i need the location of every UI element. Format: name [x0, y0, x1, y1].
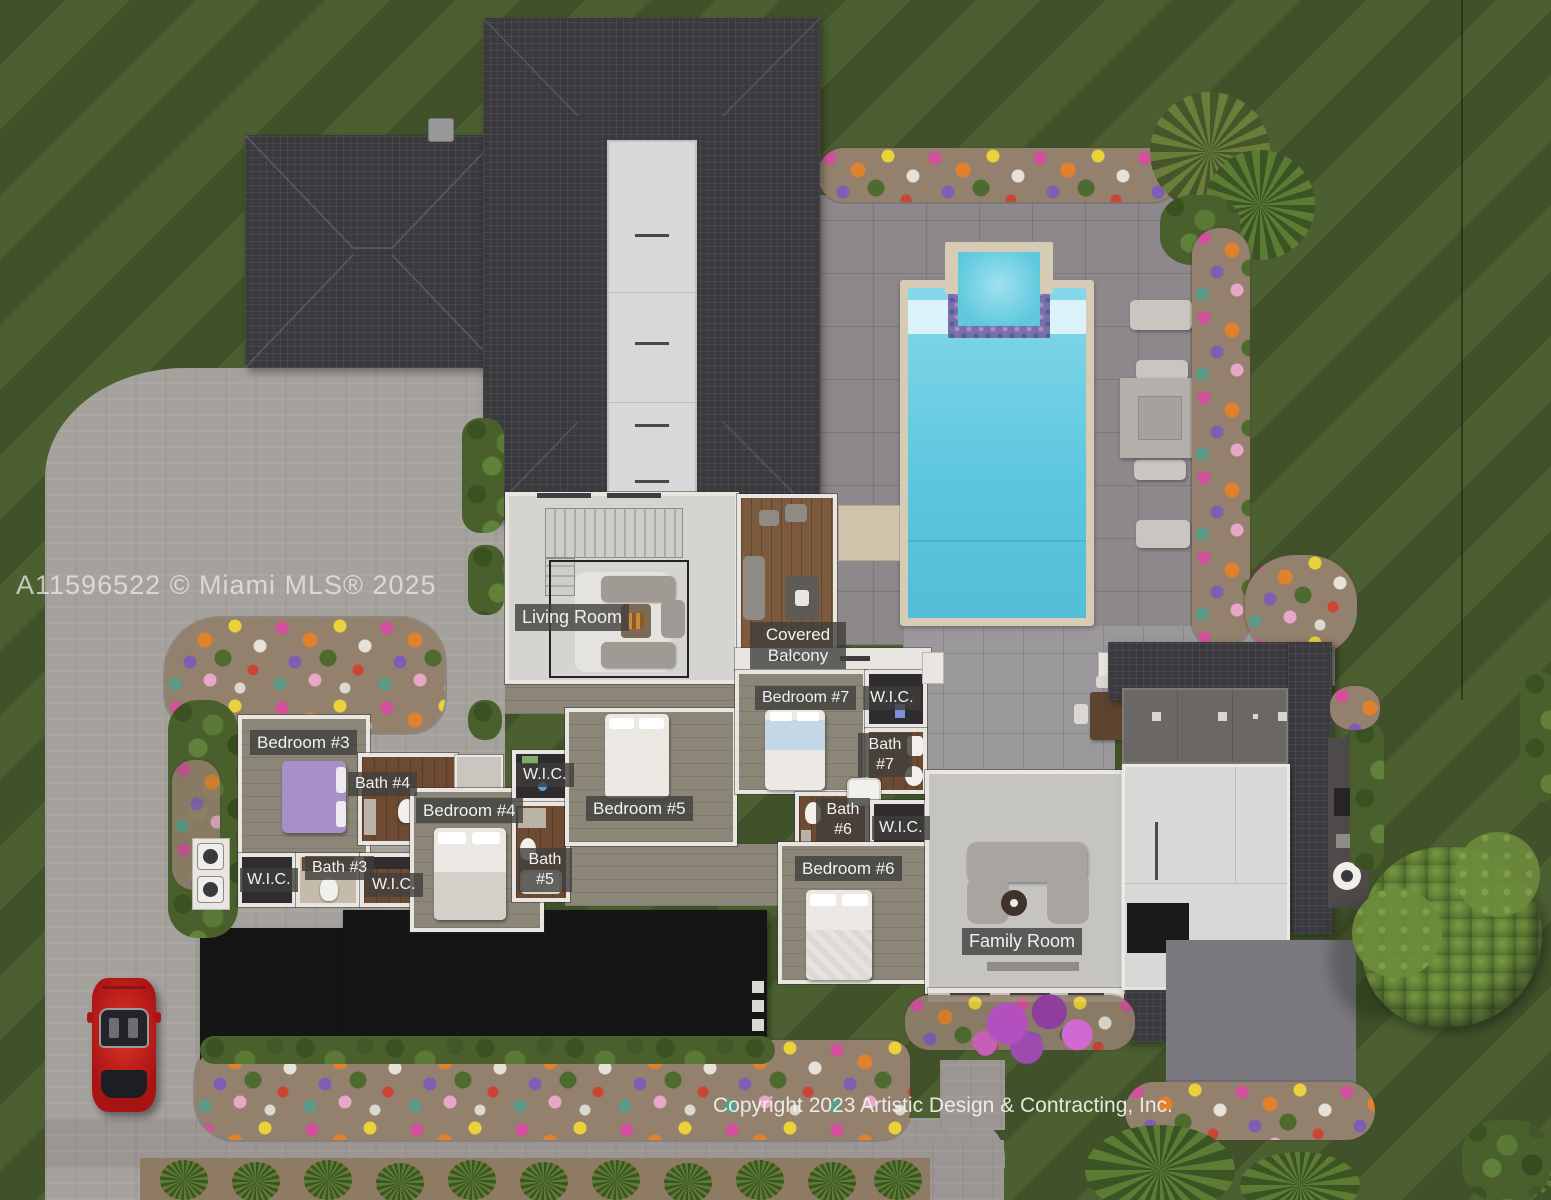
- label-bedroom-4: Bedroom #4: [416, 798, 523, 823]
- lounge-chair: [1134, 460, 1186, 480]
- rear-window: [101, 1070, 147, 1098]
- label-living-room: Living Room: [515, 604, 629, 631]
- hedge-right: [1350, 722, 1384, 870]
- window: [537, 493, 591, 498]
- agave-plant: [808, 1162, 856, 1200]
- copyright-text: Copyright 2023 Artistic Design & Contrac…: [713, 1094, 1173, 1118]
- chimney: [428, 118, 454, 142]
- fire-table-top: [795, 590, 809, 606]
- roof-seam: [1125, 883, 1287, 884]
- pillow: [639, 718, 664, 729]
- skylight-tick: [635, 234, 669, 237]
- lounge-chair: [1136, 520, 1190, 548]
- sofa: [601, 642, 675, 668]
- ac-fan: [203, 882, 218, 897]
- window: [607, 493, 661, 498]
- label-bath-7: Bath #7: [858, 733, 912, 777]
- pillow: [438, 832, 466, 844]
- roof-vent: [1278, 712, 1287, 721]
- skylight: [607, 140, 697, 505]
- hood-line: [102, 986, 146, 989]
- agave-plant: [160, 1160, 208, 1200]
- roof-vent: [1253, 714, 1258, 719]
- side-mirror: [155, 1012, 161, 1023]
- terrace-chair: [1074, 704, 1088, 724]
- staircase: [545, 508, 683, 558]
- label-bedroom-6: Bedroom #6: [795, 856, 902, 881]
- label-bath-6: Bath #6: [816, 798, 870, 842]
- outdoor-sofa: [743, 556, 765, 620]
- flower-bed-right-strip: [1192, 228, 1250, 648]
- room-bedroom-5: [565, 708, 737, 846]
- red-car: [92, 978, 156, 1112]
- skylight-tick: [635, 342, 669, 345]
- bed: [434, 828, 506, 920]
- fire-table-outdoor: [785, 576, 819, 620]
- ac-unit: [197, 876, 224, 903]
- windshield: [99, 1008, 149, 1048]
- label-wic-right: W.I.C.: [365, 873, 423, 897]
- car-seat: [109, 1018, 119, 1038]
- agave-plant: [592, 1160, 640, 1200]
- agave-plant: [736, 1160, 784, 1200]
- label-bedroom-5: Bedroom #5: [586, 796, 693, 821]
- main-roof: [483, 18, 820, 520]
- fire-logs: [628, 613, 644, 629]
- pillow: [810, 894, 836, 906]
- sofa: [601, 576, 675, 602]
- label-family-room: Family Room: [962, 928, 1082, 955]
- pillow: [336, 767, 346, 793]
- bed: [765, 710, 825, 790]
- roof-vent: [1218, 712, 1227, 721]
- agave-plant: [448, 1160, 496, 1200]
- toilet: [320, 877, 338, 901]
- site-plan-rendering: Living Room Covered Balcony Bedroom #7 W…: [0, 0, 1551, 1200]
- left-roof: [245, 135, 500, 368]
- pool-seam: [908, 540, 1086, 542]
- roof-vent: [752, 1000, 764, 1012]
- agave-plant: [304, 1160, 352, 1200]
- roof-vent: [752, 1019, 764, 1031]
- property-line: [1461, 0, 1463, 700]
- label-wic-left: W.I.C.: [240, 868, 298, 892]
- label-wic-7: W.I.C.: [863, 686, 921, 710]
- dining-table: [1138, 396, 1182, 440]
- car-seat: [128, 1018, 138, 1038]
- pillow: [842, 894, 868, 906]
- garage-roof-inset: [1122, 688, 1288, 764]
- bed: [806, 890, 872, 980]
- ac-fan: [203, 849, 218, 864]
- label-wic-6: W.I.C.: [872, 816, 930, 840]
- agave-plant: [520, 1162, 568, 1200]
- big-tree-lobe: [1455, 832, 1540, 917]
- skylight-seam: [609, 292, 695, 293]
- agave-plant: [874, 1160, 922, 1200]
- console-table: [987, 962, 1079, 971]
- terrace-pillar: [922, 652, 944, 684]
- shrub-strip: [462, 418, 504, 533]
- roof-seam: [1235, 767, 1236, 883]
- duvet: [806, 930, 872, 980]
- spa-water: [958, 252, 1040, 326]
- hedge-bottom: [200, 1036, 775, 1064]
- vanity: [364, 799, 376, 835]
- pillow: [797, 712, 819, 721]
- kitchen-sink: [1336, 834, 1350, 848]
- side-mirror: [87, 1012, 93, 1023]
- sectional-sofa: [1047, 874, 1089, 924]
- palm-tree: [1240, 1152, 1360, 1200]
- side-table: [1001, 890, 1027, 916]
- room-living: [505, 492, 739, 684]
- blanket: [434, 872, 506, 920]
- roof-seam: [1155, 822, 1158, 880]
- label-wic-central: W.I.C.: [516, 763, 574, 787]
- label-bath-4: Bath #4: [348, 772, 417, 796]
- terrace-left: [903, 626, 1115, 774]
- pillow: [609, 718, 634, 729]
- hallway-lower: [565, 844, 780, 906]
- label-bedroom-3: Bedroom #3: [250, 730, 357, 755]
- pool-equipment-pad: [838, 505, 900, 561]
- room-family: [925, 770, 1125, 994]
- black-flat-roof-wide: [343, 910, 767, 1045]
- armchair: [661, 600, 685, 638]
- bougainvillea: [968, 988, 1108, 1073]
- lounge-chair: [1136, 360, 1188, 380]
- pillow: [336, 801, 346, 827]
- outdoor-chair: [759, 510, 779, 526]
- right-roof-column: [1288, 642, 1332, 934]
- lounge-chair: [1130, 300, 1192, 330]
- left-roof-hips: [245, 135, 500, 368]
- skylight-seam: [609, 402, 695, 403]
- shrub-small: [468, 700, 502, 740]
- shrub-strip: [468, 545, 504, 615]
- label-bath-3: Bath #3: [305, 856, 374, 880]
- bed: [605, 714, 669, 798]
- outdoor-chair: [785, 504, 807, 522]
- shrub-right-edge: [1520, 672, 1551, 802]
- label-bath-5: Bath #5: [518, 848, 572, 892]
- skylight-tick: [635, 480, 669, 483]
- roof-vent: [752, 981, 764, 993]
- shrub-corner: [1462, 1120, 1551, 1200]
- agave-plant: [232, 1162, 280, 1200]
- big-tree-lobe: [1352, 888, 1442, 978]
- label-covered-balcony: Covered Balcony: [750, 622, 846, 669]
- pillow: [472, 832, 500, 844]
- flower-bed-pool-top: [818, 148, 1178, 202]
- mls-watermark: A11596522 © Miami MLS® 2025: [16, 570, 437, 601]
- flower-clump-right: [1330, 686, 1380, 730]
- skylight-tick: [635, 424, 669, 427]
- pillow: [770, 712, 792, 721]
- side-table-top: [1010, 899, 1018, 907]
- blanket: [765, 720, 825, 750]
- roof-vent: [1152, 712, 1161, 721]
- agave-plant: [376, 1163, 424, 1200]
- agave-plant: [664, 1163, 712, 1200]
- label-bedroom-7: Bedroom #7: [755, 686, 856, 710]
- ac-unit: [197, 843, 224, 870]
- bbq-grate: [1341, 870, 1353, 882]
